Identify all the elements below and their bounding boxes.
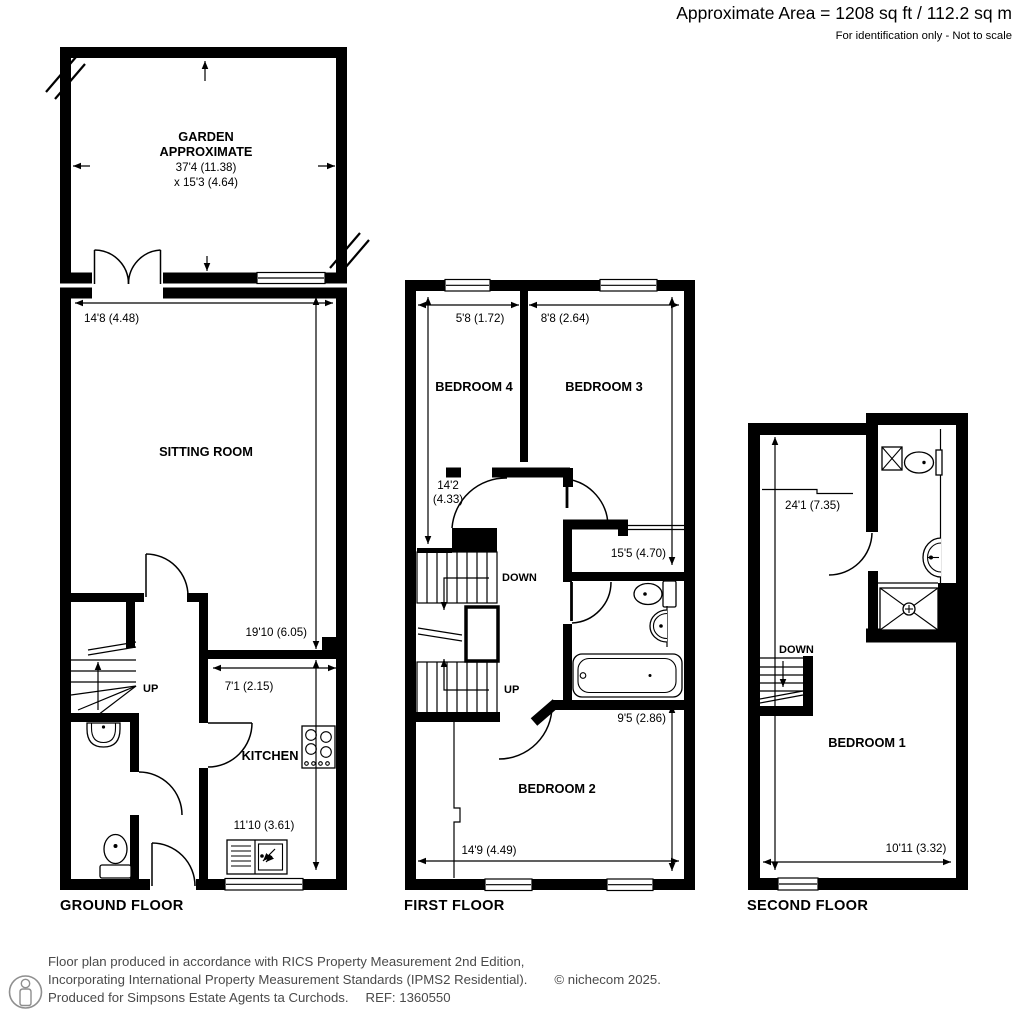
ensuite-basin-icon	[923, 538, 941, 577]
shower-icon	[880, 588, 938, 630]
ensuite-door-icon	[829, 533, 872, 575]
footer-line1: Floor plan produced in accordance with R…	[48, 953, 661, 971]
bedroom3-label: BEDROOM 3	[565, 379, 643, 394]
bedroom2-label: BEDROOM 2	[518, 781, 596, 796]
skylight-icon	[882, 447, 902, 470]
footer-line3: Produced for Simpsons Estate Agents ta C…	[48, 990, 349, 1005]
bedroom1-window-icon	[778, 878, 818, 890]
first-stairs-up-label: UP	[504, 684, 519, 696]
first-floor-label: FIRST FLOOR	[404, 898, 505, 914]
footer-ref: REF: 1360550	[366, 990, 451, 1005]
bedroom4-depth-dimension-m: (4.33)	[433, 493, 463, 506]
kitchen-label: KITCHEN	[242, 748, 299, 763]
bathroom-door-icon	[572, 582, 612, 623]
person-icon	[10, 976, 42, 1008]
bathroom-toilet-icon	[634, 581, 676, 607]
wc-door-icon	[139, 772, 182, 815]
bedroom1-width-dimension: 10'11 (3.32)	[886, 842, 947, 855]
floorplan-drawing: GARDEN APPROXIMATE 37'4 (11.38) x 15'3 (…	[0, 0, 1024, 1020]
bedroom1-depth-dimension: 24'1 (7.35)	[785, 499, 840, 512]
garden-window-icon	[257, 273, 325, 284]
garden-width-dimension: 37'4 (11.38)	[176, 161, 237, 174]
ensuite-toilet-icon	[905, 450, 943, 475]
bedroom3-depth-dimension: 15'5 (4.70)	[611, 547, 666, 560]
floorplan-page: Approximate Area = 1208 sq ft / 112.2 sq…	[0, 0, 1024, 1020]
kitchen-depth-dimension: 11'10 (3.61)	[234, 819, 295, 832]
footer-line2: Incorporating International Property Mea…	[48, 972, 527, 987]
kitchen-window-icon	[225, 879, 303, 891]
sitting-room-width-dimension: 14'8 (4.48)	[84, 312, 139, 325]
bedroom2-partition-line	[454, 722, 460, 878]
first-floor-plan: DOWN UP	[404, 280, 690, 915]
hob-icon	[302, 726, 335, 768]
wc-basin-icon	[87, 723, 120, 747]
bedroom3-width-dimension: 8'8 (2.64)	[541, 312, 590, 325]
second-stairs	[760, 656, 813, 716]
garden-label: GARDEN	[178, 129, 233, 144]
ground-floor-plan: GARDEN APPROXIMATE 37'4 (11.38) x 15'3 (…	[46, 53, 369, 915]
ground-stairs-up-label: UP	[143, 683, 158, 695]
footer-copyright: © nichecom 2025.	[554, 972, 661, 987]
bedroom3-door-icon	[567, 479, 608, 526]
sink-icon	[227, 840, 287, 874]
wc-toilet-icon	[100, 835, 131, 879]
footer: Floor plan produced in accordance with R…	[48, 953, 661, 1007]
sitting-room-label: SITTING ROOM	[159, 444, 253, 459]
sitting-room-door-icon	[146, 554, 188, 597]
second-floor-plan: DOWN	[747, 413, 968, 914]
ground-stairs	[71, 642, 136, 715]
bedroom4-width-dimension: 5'8 (1.72)	[456, 312, 505, 325]
ground-floor-label: GROUND FLOOR	[60, 898, 184, 914]
bedroom1-label: BEDROOM 1	[828, 735, 906, 750]
second-stairs-down-label: DOWN	[779, 644, 814, 656]
bedroom2-width-dimension: 14'9 (4.49)	[461, 844, 516, 857]
first-stairs	[417, 552, 498, 713]
second-floor-label: SECOND FLOOR	[747, 898, 868, 914]
garden-depth-dimension: x 15'3 (4.64)	[174, 176, 238, 189]
sitting-room-depth-dimension: 19'10 (6.05)	[245, 626, 307, 639]
garden-label-line2: APPROXIMATE	[160, 144, 253, 159]
bedroom4-label: BEDROOM 4	[435, 379, 513, 394]
bedroom2-depth-dimension: 9'5 (2.86)	[617, 712, 666, 725]
bathroom-basin-icon	[650, 606, 667, 647]
french-doors-icon	[92, 250, 163, 304]
front-door-icon	[150, 843, 196, 891]
first-stairs-down-label: DOWN	[502, 572, 537, 584]
kitchen-width-dimension: 7'1 (2.15)	[225, 680, 274, 693]
bath-icon	[573, 654, 682, 697]
bedroom4-depth-dimension: 14'2	[437, 479, 459, 492]
